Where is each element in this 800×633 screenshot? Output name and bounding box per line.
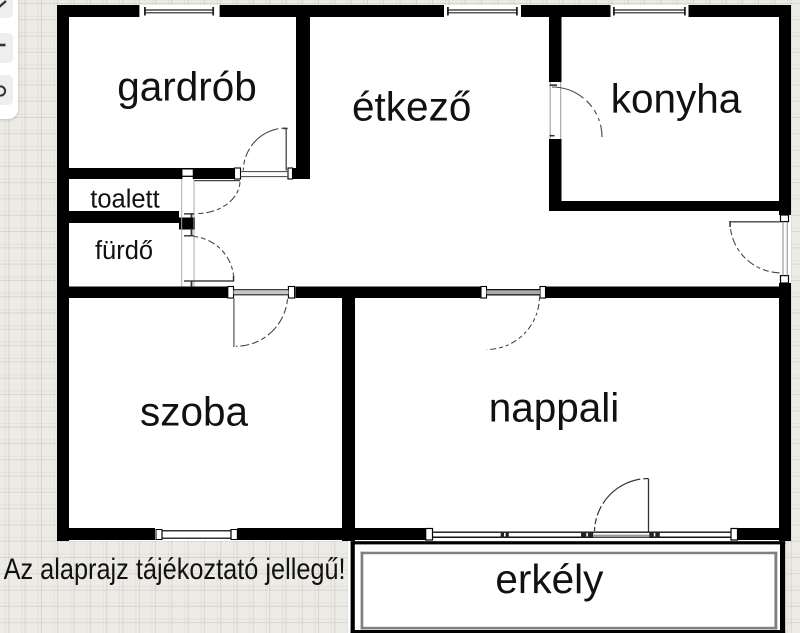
svg-text:fürdő: fürdő [95, 237, 153, 265]
svg-text:gardrób: gardrób [117, 63, 257, 109]
svg-text:erkély: erkély [495, 556, 604, 602]
svg-text:konyha: konyha [611, 76, 742, 122]
svg-text:Az alaprajz tájékoztató jelleg: Az alaprajz tájékoztató jellegű! [4, 553, 346, 586]
svg-text:étkező: étkező [352, 83, 471, 129]
svg-text:toalett: toalett [90, 186, 159, 214]
svg-text:szoba: szoba [140, 388, 249, 434]
svg-text:nappali: nappali [489, 384, 620, 430]
